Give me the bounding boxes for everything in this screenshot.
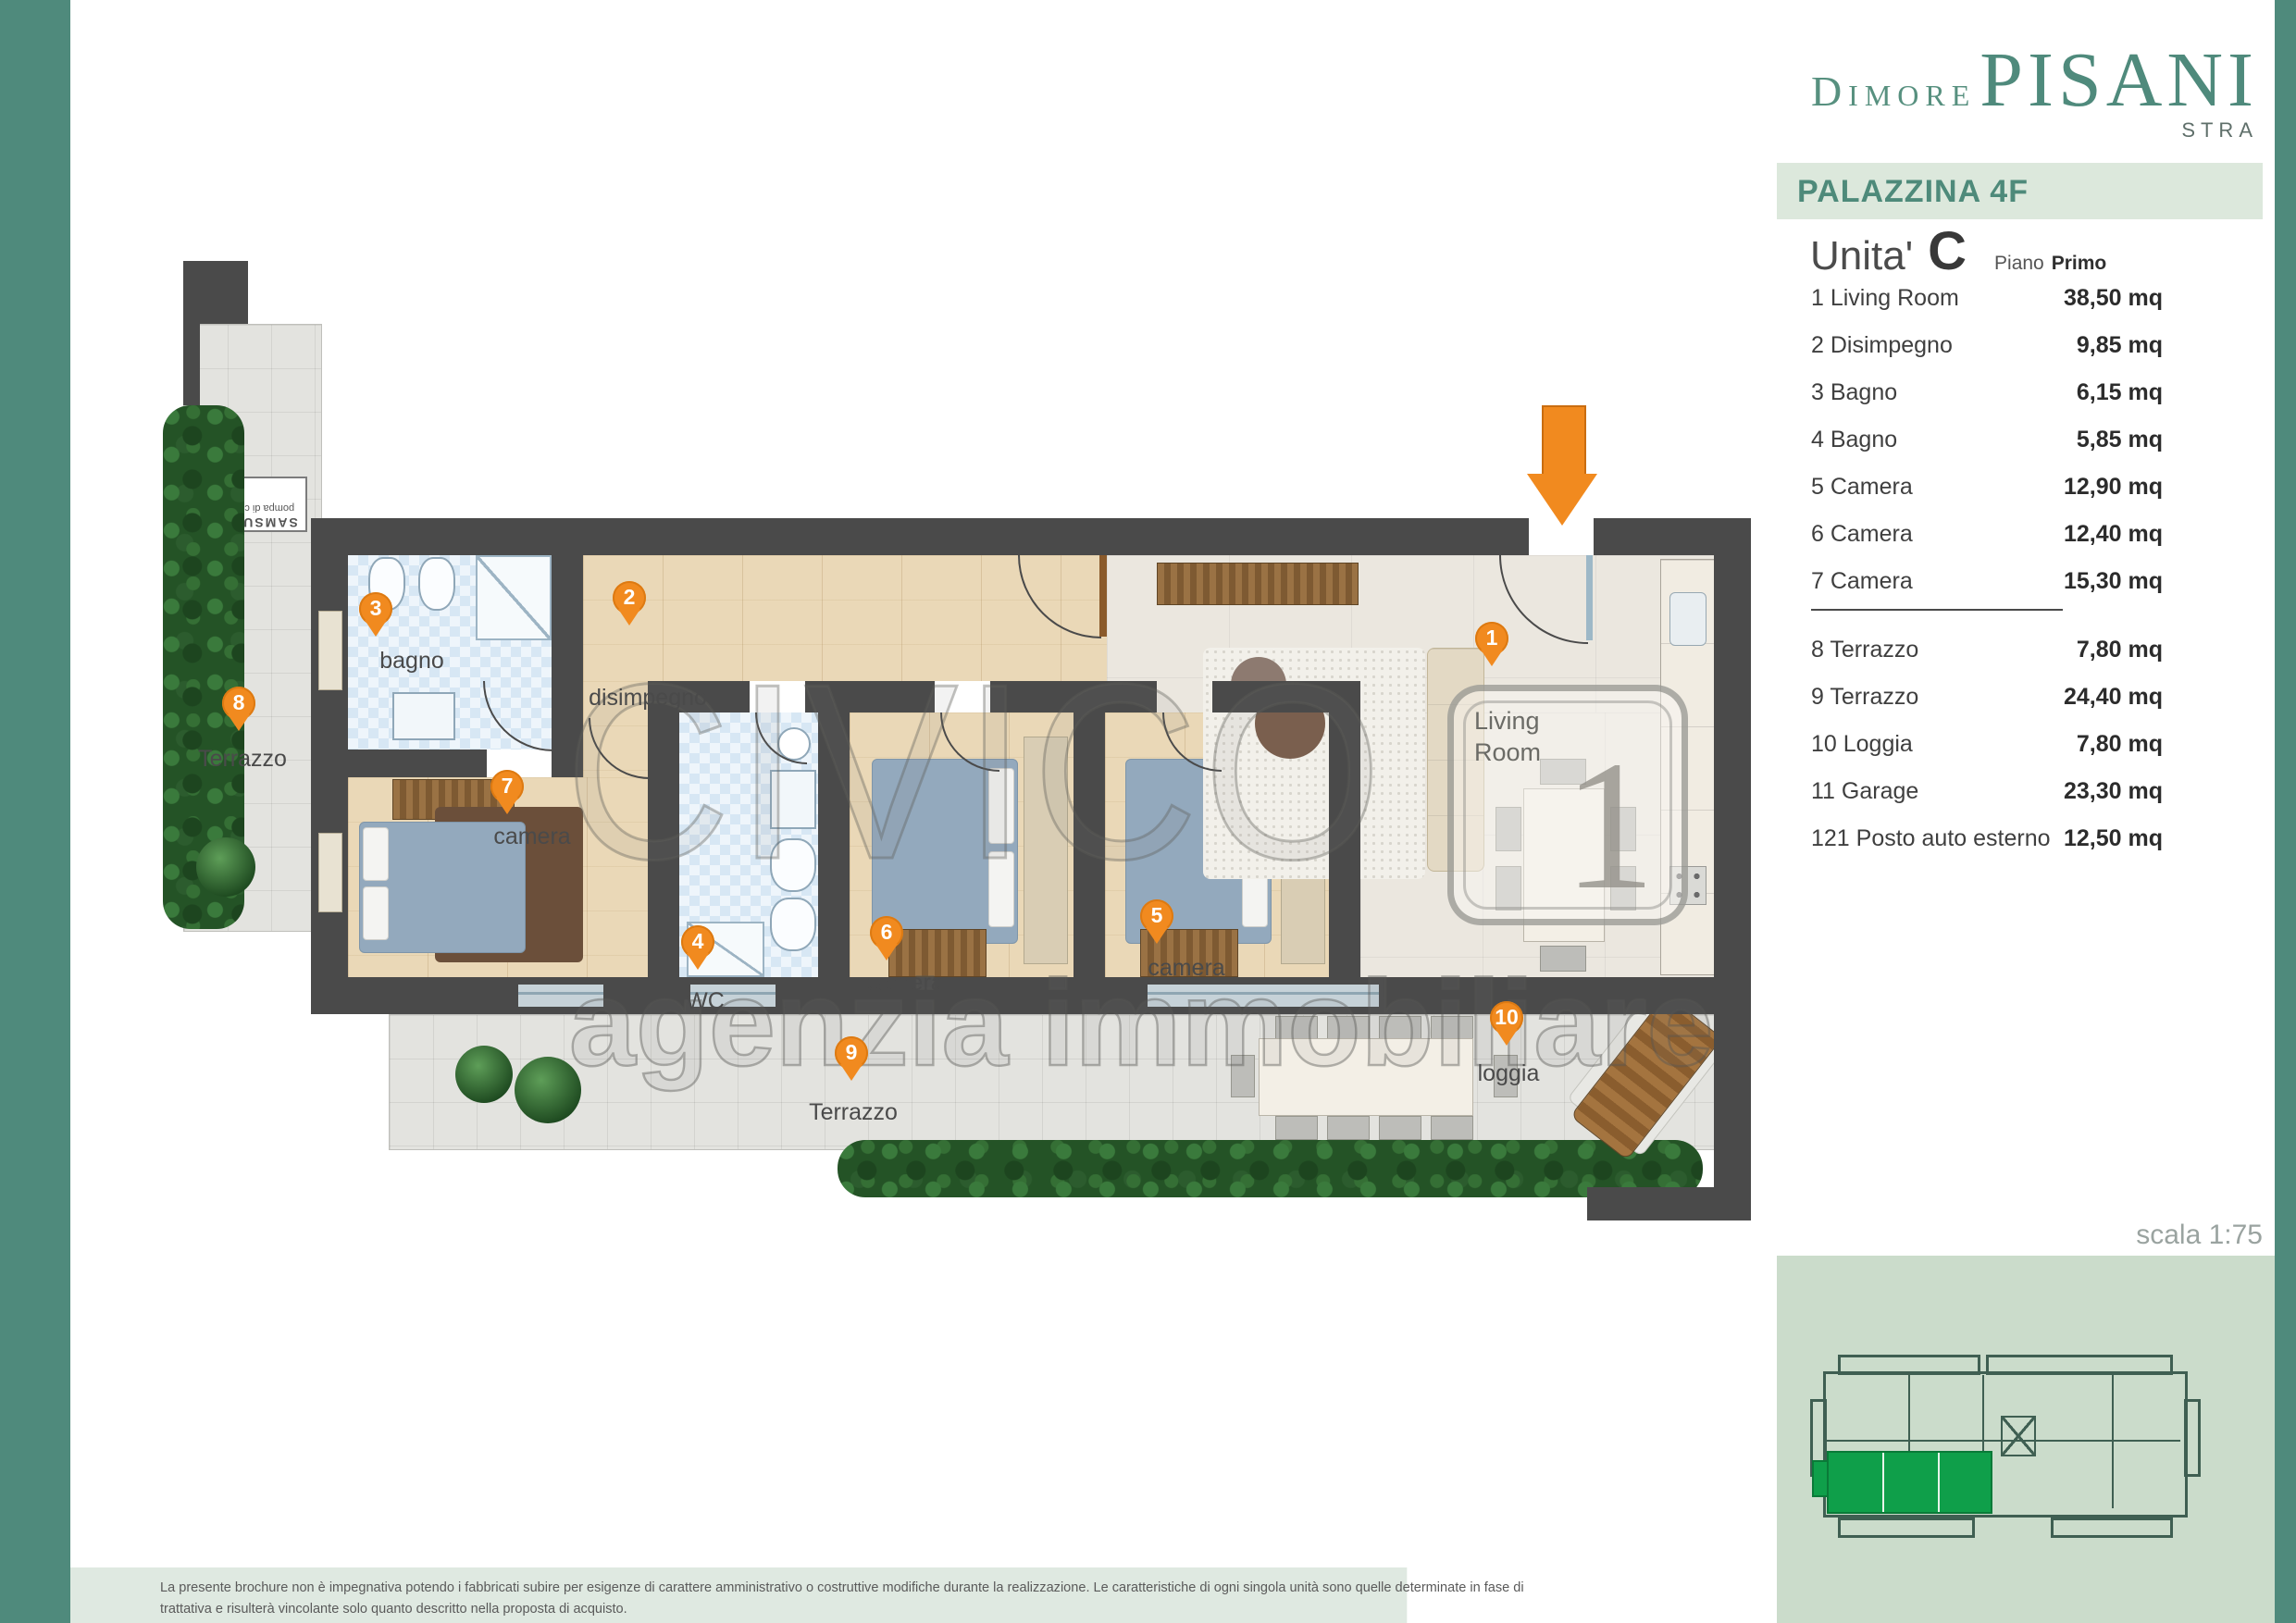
loggia-chair [1327, 1116, 1370, 1140]
loggia-chair [1275, 1116, 1318, 1140]
keyplan-highlighted-unit [1827, 1451, 1992, 1514]
disclaimer: La presente brochure non è impegnativa p… [70, 1567, 1407, 1623]
room-row: 4 Bagno5,85 mq [1811, 427, 2163, 453]
room-row: 1 Living Room38,50 mq [1811, 285, 2163, 312]
disclaimer-line2: trattativa e risulterà vincolante solo q… [160, 1598, 1407, 1619]
loggia-chair [1431, 1116, 1473, 1140]
bush [455, 1046, 513, 1103]
label-terrazzo8: Terrazzo [198, 746, 287, 773]
list-divider [1811, 609, 2063, 611]
room-row: 7 Camera15,30 mq [1811, 568, 2163, 595]
room-row: 10 Loggia7,80 mq [1811, 731, 2163, 758]
room-row: 2 Disimpegno9,85 mq [1811, 332, 2163, 359]
door-leaf [1099, 555, 1107, 637]
loggia-chair [1379, 1116, 1421, 1140]
entry-door-leaf [1586, 555, 1593, 640]
living-room-shield: Living Room 1 [1447, 685, 1688, 925]
wall [1714, 518, 1751, 1220]
chimney-block [183, 261, 248, 324]
label-camera7: camera [493, 824, 570, 850]
label-disimpegno: disimpegno [589, 685, 707, 712]
wall [348, 750, 487, 777]
pin-terrazzo8: 8 [222, 687, 255, 720]
keyplan-stair-core [2001, 1416, 2036, 1456]
pin-camera7: 7 [490, 770, 524, 803]
label-loggia: loggia [1478, 1060, 1540, 1087]
bidet-icon [418, 557, 455, 611]
keyplan-wall [2112, 1375, 2114, 1508]
wall [1587, 1187, 1751, 1220]
window [318, 611, 342, 690]
room-row: 9 Terrazzo24,40 mq [1811, 684, 2163, 711]
bush [196, 837, 255, 897]
pillow [363, 886, 389, 940]
keyplan-balcony [1986, 1355, 2173, 1375]
living-room-label: Living Room [1474, 706, 1541, 769]
room-row: 5 Camera12,90 mq [1811, 474, 2163, 501]
room-list: 1 Living Room38,50 mq 2 Disimpegno9,85 m… [1811, 0, 2163, 879]
pin-camera6: 6 [870, 916, 903, 949]
entrance-arrow-head [1527, 474, 1597, 526]
pin-loggia: 10 [1490, 1001, 1523, 1035]
pin-disimpegno: 2 [613, 581, 646, 614]
pin-bagno: 3 [359, 592, 392, 626]
keyplan-balcony [2051, 1518, 2173, 1538]
label-camera6: camera [866, 970, 943, 997]
keyplan-unit-wall [1938, 1453, 1940, 1512]
keyplan-unit-wall [1882, 1453, 1884, 1512]
keyplan-wing [2184, 1399, 2201, 1477]
window [318, 833, 342, 912]
washbasin-icon [392, 692, 455, 740]
room-row: 6 Camera12,40 mq [1811, 521, 2163, 548]
right-accent-bar [2275, 0, 2296, 1623]
pin-living: 1 [1475, 622, 1508, 655]
keyplan-balcony [1838, 1355, 1980, 1375]
room-row: 3 Bagno6,15 mq [1811, 379, 2163, 406]
label-camera5: camera [1148, 955, 1224, 982]
wall [311, 518, 1529, 555]
wall [311, 518, 348, 1014]
label-bagno: bagno [379, 648, 444, 675]
room-row: 8 Terrazzo7,80 mq [1811, 637, 2163, 663]
hedge-bottom [838, 1140, 1703, 1197]
label-terrazzo9: Terrazzo [809, 1099, 898, 1126]
pillow [363, 827, 389, 881]
keyplan-balcony [1838, 1518, 1975, 1538]
watermark-line2: agenzia immobiliare [569, 962, 1713, 1084]
brochure-page: Dimore PISANI STRA PALAZZINA 4F Unita' C… [0, 0, 2296, 1623]
room-row: 121 Posto auto esterno12,50 mq [1811, 825, 2163, 852]
label-wc: WC [686, 988, 725, 1015]
disclaimer-line1: La presente brochure non è impegnativa p… [160, 1577, 1407, 1598]
unit-number-graphic: 1 [1563, 734, 1656, 919]
left-accent-bar [0, 0, 70, 1623]
pin-wc: 4 [681, 925, 714, 959]
scale-note: scala 1:75 [2027, 1220, 2263, 1251]
media-cabinet [1157, 563, 1359, 605]
keyplan-unit-balcony [1812, 1460, 1829, 1497]
kitchen-sink [1669, 592, 1706, 646]
room-row: 11 Garage23,30 mq [1811, 778, 2163, 805]
terrace8-wall [183, 324, 200, 405]
pin-terrazzo9: 9 [835, 1036, 868, 1070]
shower-icon [476, 555, 552, 640]
entrance-arrow-shaft [1542, 405, 1586, 477]
pin-camera5: 5 [1140, 899, 1173, 933]
